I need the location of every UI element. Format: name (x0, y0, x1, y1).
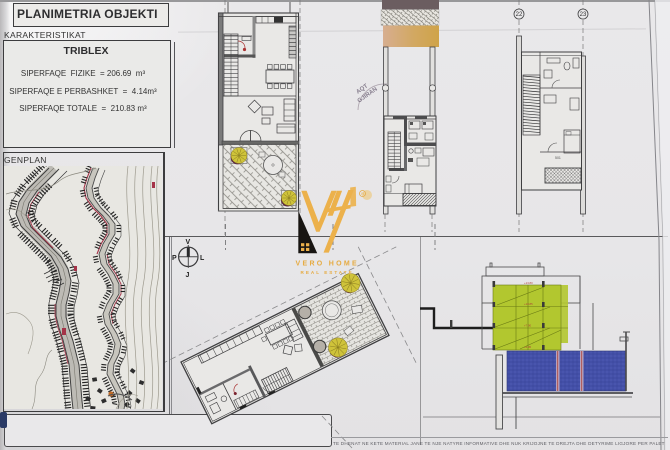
svg-text:+10.85: +10.85 (524, 302, 533, 306)
svg-text:VERO HOME: VERO HOME (296, 261, 359, 268)
svg-text:L: L (200, 255, 205, 262)
svg-text:+13.80: +13.80 (524, 281, 533, 285)
svg-text:501: 501 (555, 156, 561, 160)
svg-text:23: 23 (580, 12, 587, 18)
svg-text:J: J (186, 272, 190, 279)
svg-text:P: P (172, 255, 177, 262)
svg-text:+4.95: +4.95 (524, 345, 532, 349)
svg-text:22: 22 (516, 12, 523, 18)
svg-text:REAL ESTATE: REAL ESTATE (301, 270, 354, 275)
svg-text:V: V (186, 239, 191, 246)
svg-text:+7.90: +7.90 (524, 324, 532, 328)
svg-text:R: R (361, 192, 364, 196)
